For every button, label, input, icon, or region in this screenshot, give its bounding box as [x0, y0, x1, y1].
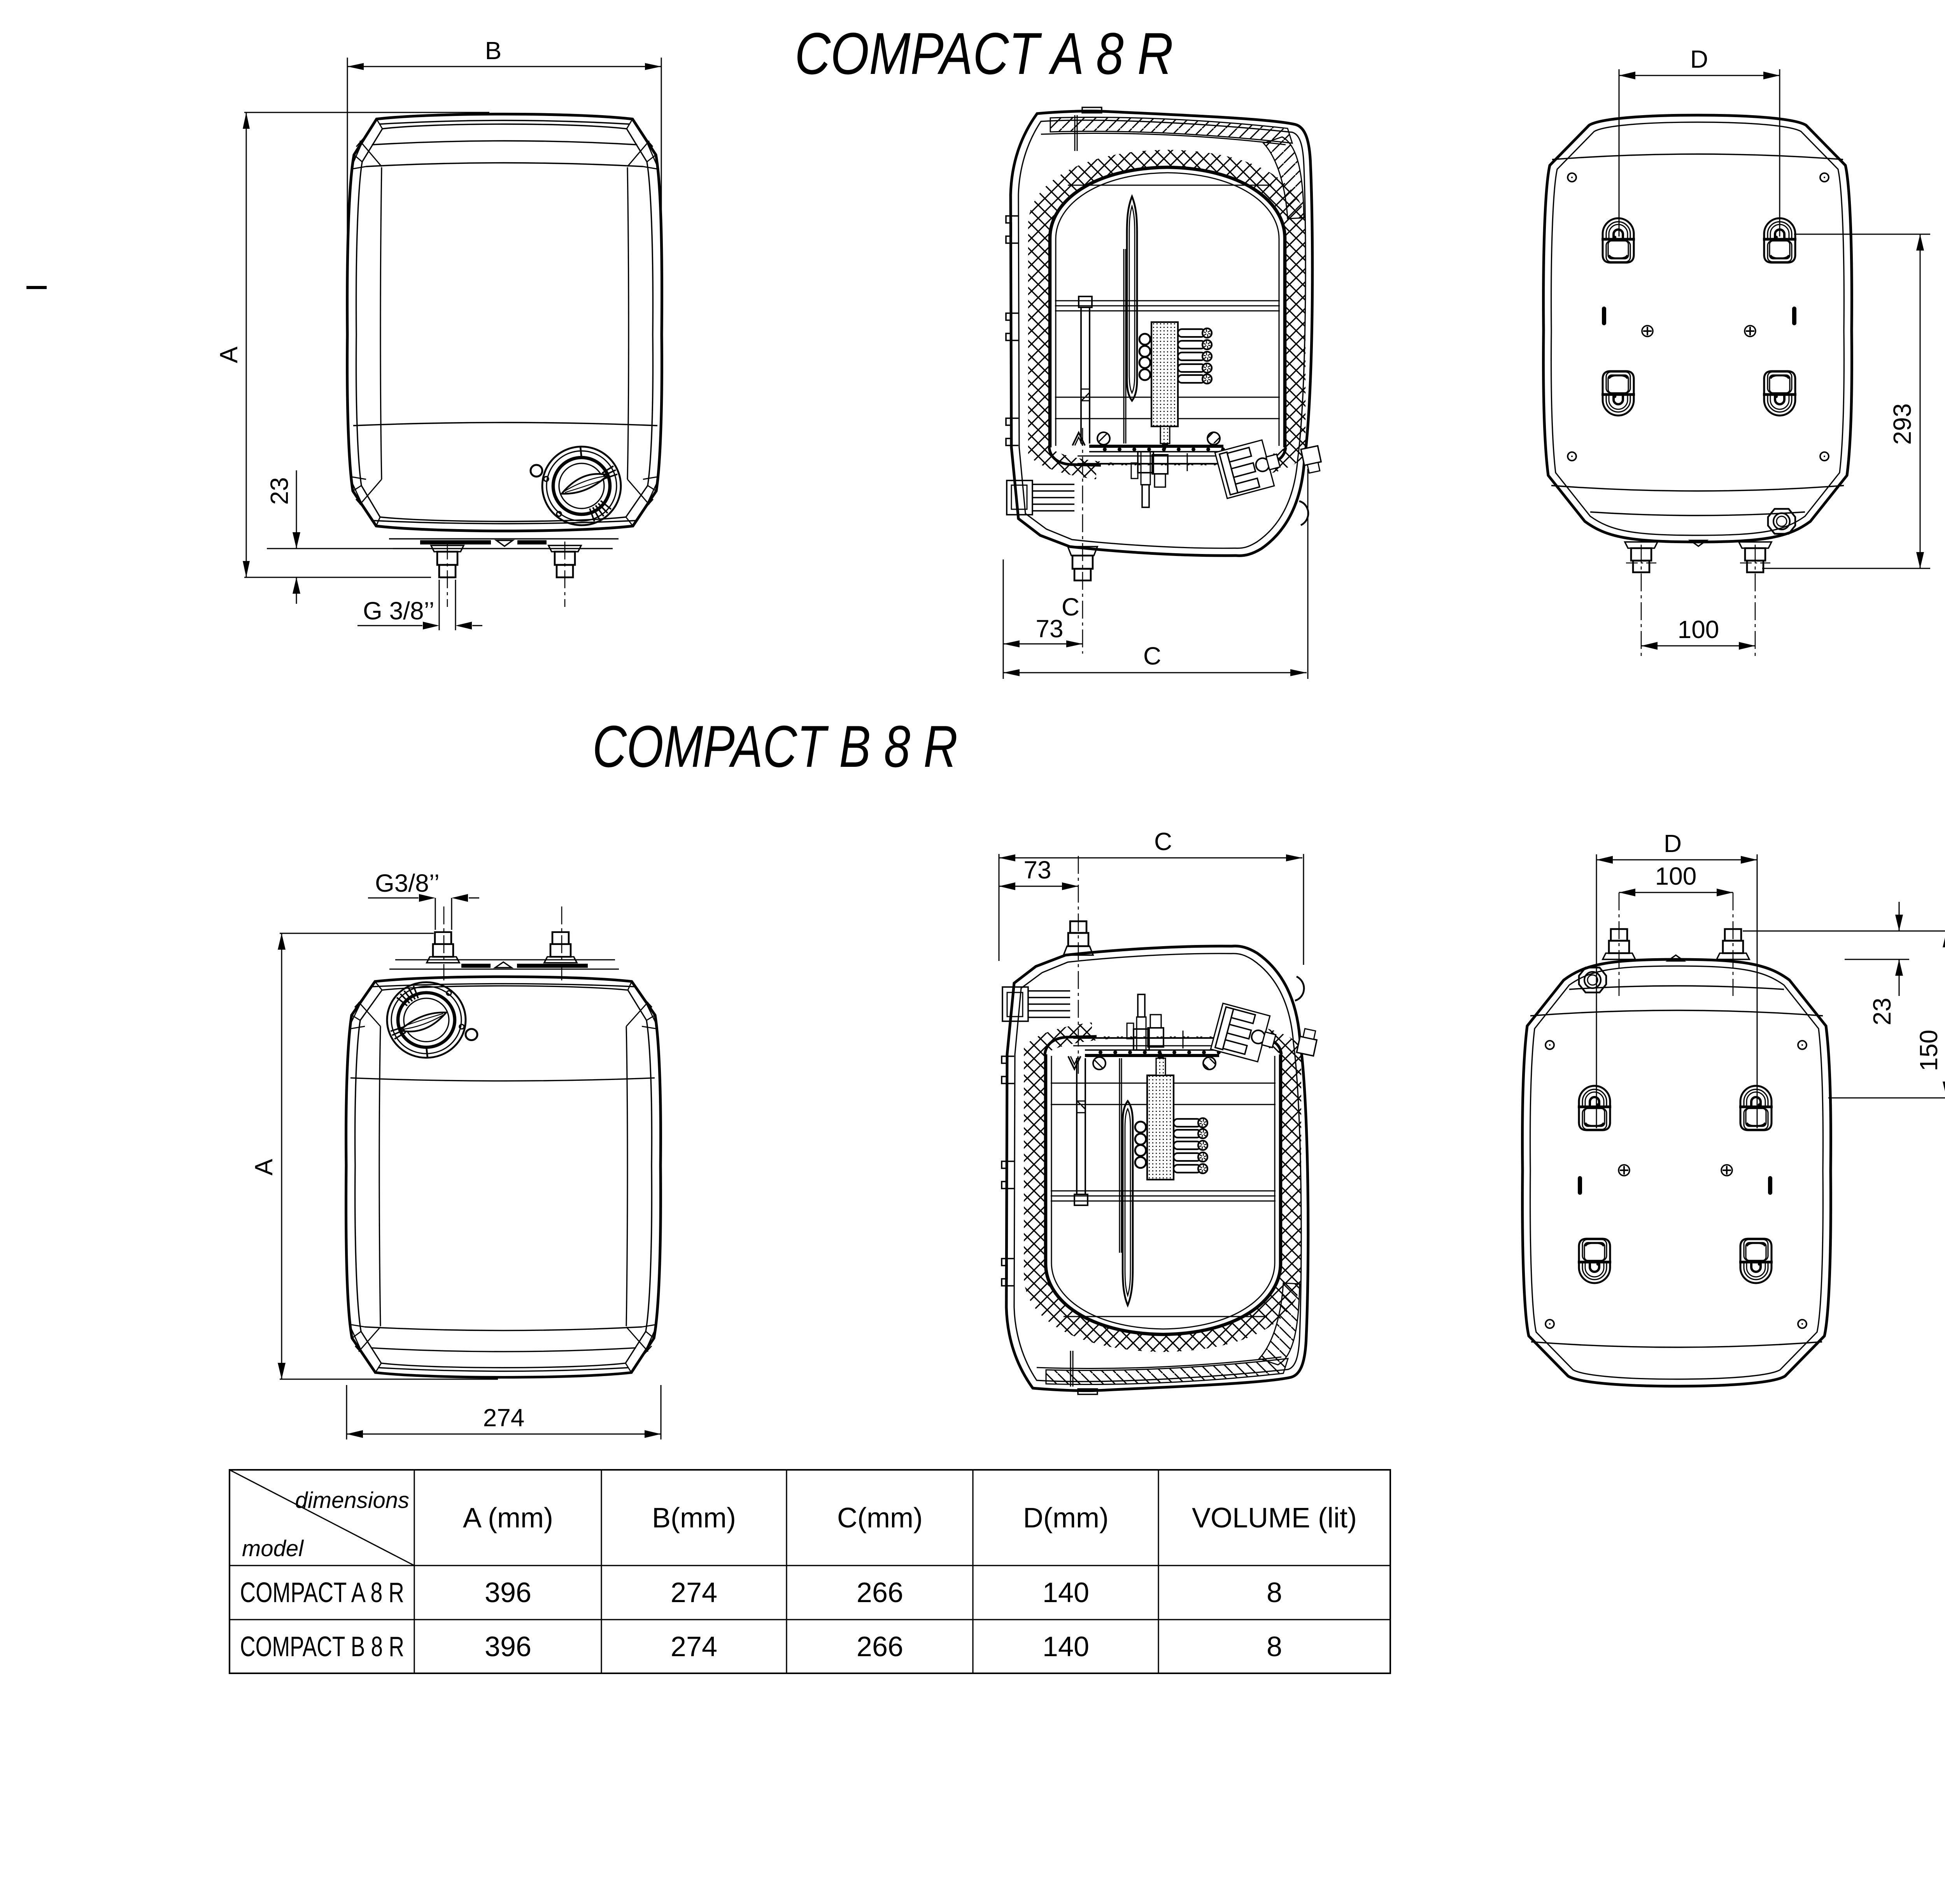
- svg-text:8: 8: [1267, 1631, 1282, 1662]
- svg-text:VOLUME (lit): VOLUME (lit): [1192, 1503, 1357, 1534]
- svg-text:D(mm): D(mm): [1023, 1503, 1109, 1534]
- svg-text:266: 266: [857, 1577, 903, 1608]
- svg-text:COMPACT A 8 R: COMPACT A 8 R: [795, 21, 1173, 87]
- svg-text:G 3/8’’: G 3/8’’: [363, 597, 435, 625]
- svg-text:100: 100: [1655, 862, 1697, 890]
- svg-text:A: A: [215, 346, 243, 363]
- svg-text:140: 140: [1043, 1577, 1089, 1608]
- svg-text:150: 150: [1915, 1030, 1943, 1071]
- svg-text:293: 293: [1888, 403, 1916, 445]
- svg-text:73: 73: [1036, 615, 1063, 643]
- svg-text:COMPACT B 8 R: COMPACT B 8 R: [240, 1631, 404, 1662]
- svg-text:C: C: [1143, 642, 1161, 670]
- svg-text:8: 8: [1267, 1577, 1282, 1608]
- svg-text:274: 274: [671, 1577, 717, 1608]
- svg-text:23: 23: [265, 477, 293, 505]
- svg-text:100: 100: [1678, 615, 1719, 643]
- svg-text:model: model: [242, 1536, 304, 1561]
- svg-text:C: C: [1062, 593, 1079, 621]
- svg-text:dimensions: dimensions: [295, 1488, 409, 1513]
- svg-text:274: 274: [671, 1631, 717, 1662]
- svg-text:COMPACT A 8 R: COMPACT A 8 R: [240, 1577, 404, 1608]
- svg-text:D: D: [1664, 829, 1682, 857]
- svg-text:B(mm): B(mm): [652, 1503, 736, 1534]
- svg-text:266: 266: [857, 1631, 903, 1662]
- svg-text:396: 396: [485, 1631, 531, 1662]
- svg-text:A: A: [250, 1159, 278, 1175]
- svg-text:73: 73: [1023, 856, 1051, 884]
- svg-text:274: 274: [483, 1404, 525, 1432]
- svg-text:140: 140: [1043, 1631, 1089, 1662]
- svg-text:B: B: [485, 37, 502, 65]
- svg-text:A (mm): A (mm): [463, 1503, 553, 1534]
- svg-text:COMPACT B 8 R: COMPACT B 8 R: [592, 714, 958, 780]
- svg-text:D: D: [1690, 45, 1708, 73]
- svg-text:23: 23: [1868, 998, 1896, 1025]
- svg-text:G3/8’’: G3/8’’: [375, 869, 440, 897]
- svg-text:C(mm): C(mm): [837, 1503, 923, 1534]
- svg-text:C: C: [1154, 828, 1172, 856]
- svg-text:396: 396: [485, 1577, 531, 1608]
